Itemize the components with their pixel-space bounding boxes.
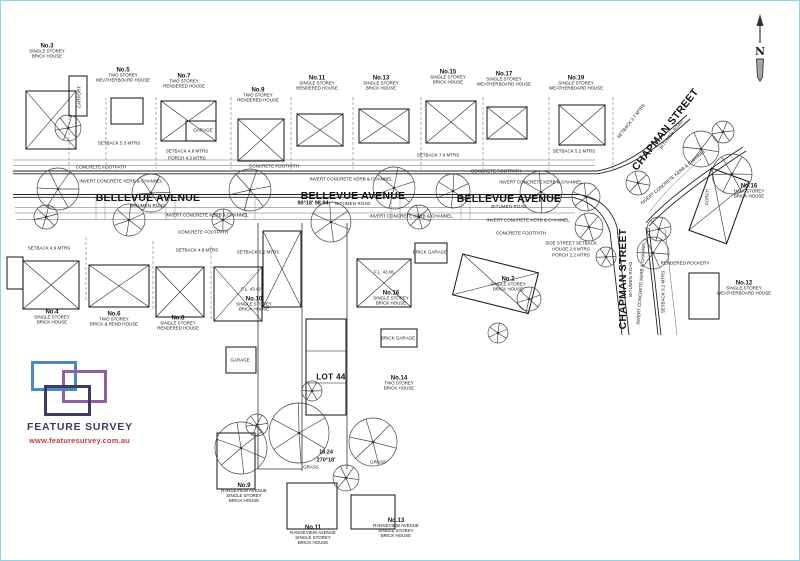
- logo-title: FEATURE SURVEY: [27, 421, 131, 433]
- north-arrow: N: [745, 13, 775, 85]
- driveways-layer: [96, 198, 470, 220]
- north-arrow-head: [757, 14, 764, 26]
- north-label: N: [755, 45, 765, 58]
- logo-url: www.featuresurvey.com.au: [29, 436, 130, 445]
- feature-survey-plan: N FEATURE SURVEY www.featuresurvey.com.a…: [0, 0, 800, 561]
- roads-layer: [13, 115, 746, 335]
- feature-survey-logo: FEATURE SURVEY www.featuresurvey.com.au: [25, 357, 135, 451]
- parcel-boundaries-layer: [258, 223, 347, 471]
- logo-rect-navy: [44, 385, 91, 416]
- footpaths-layer: [13, 159, 701, 335]
- plan-linework: [1, 1, 800, 561]
- north-arrow-base: [757, 59, 764, 81]
